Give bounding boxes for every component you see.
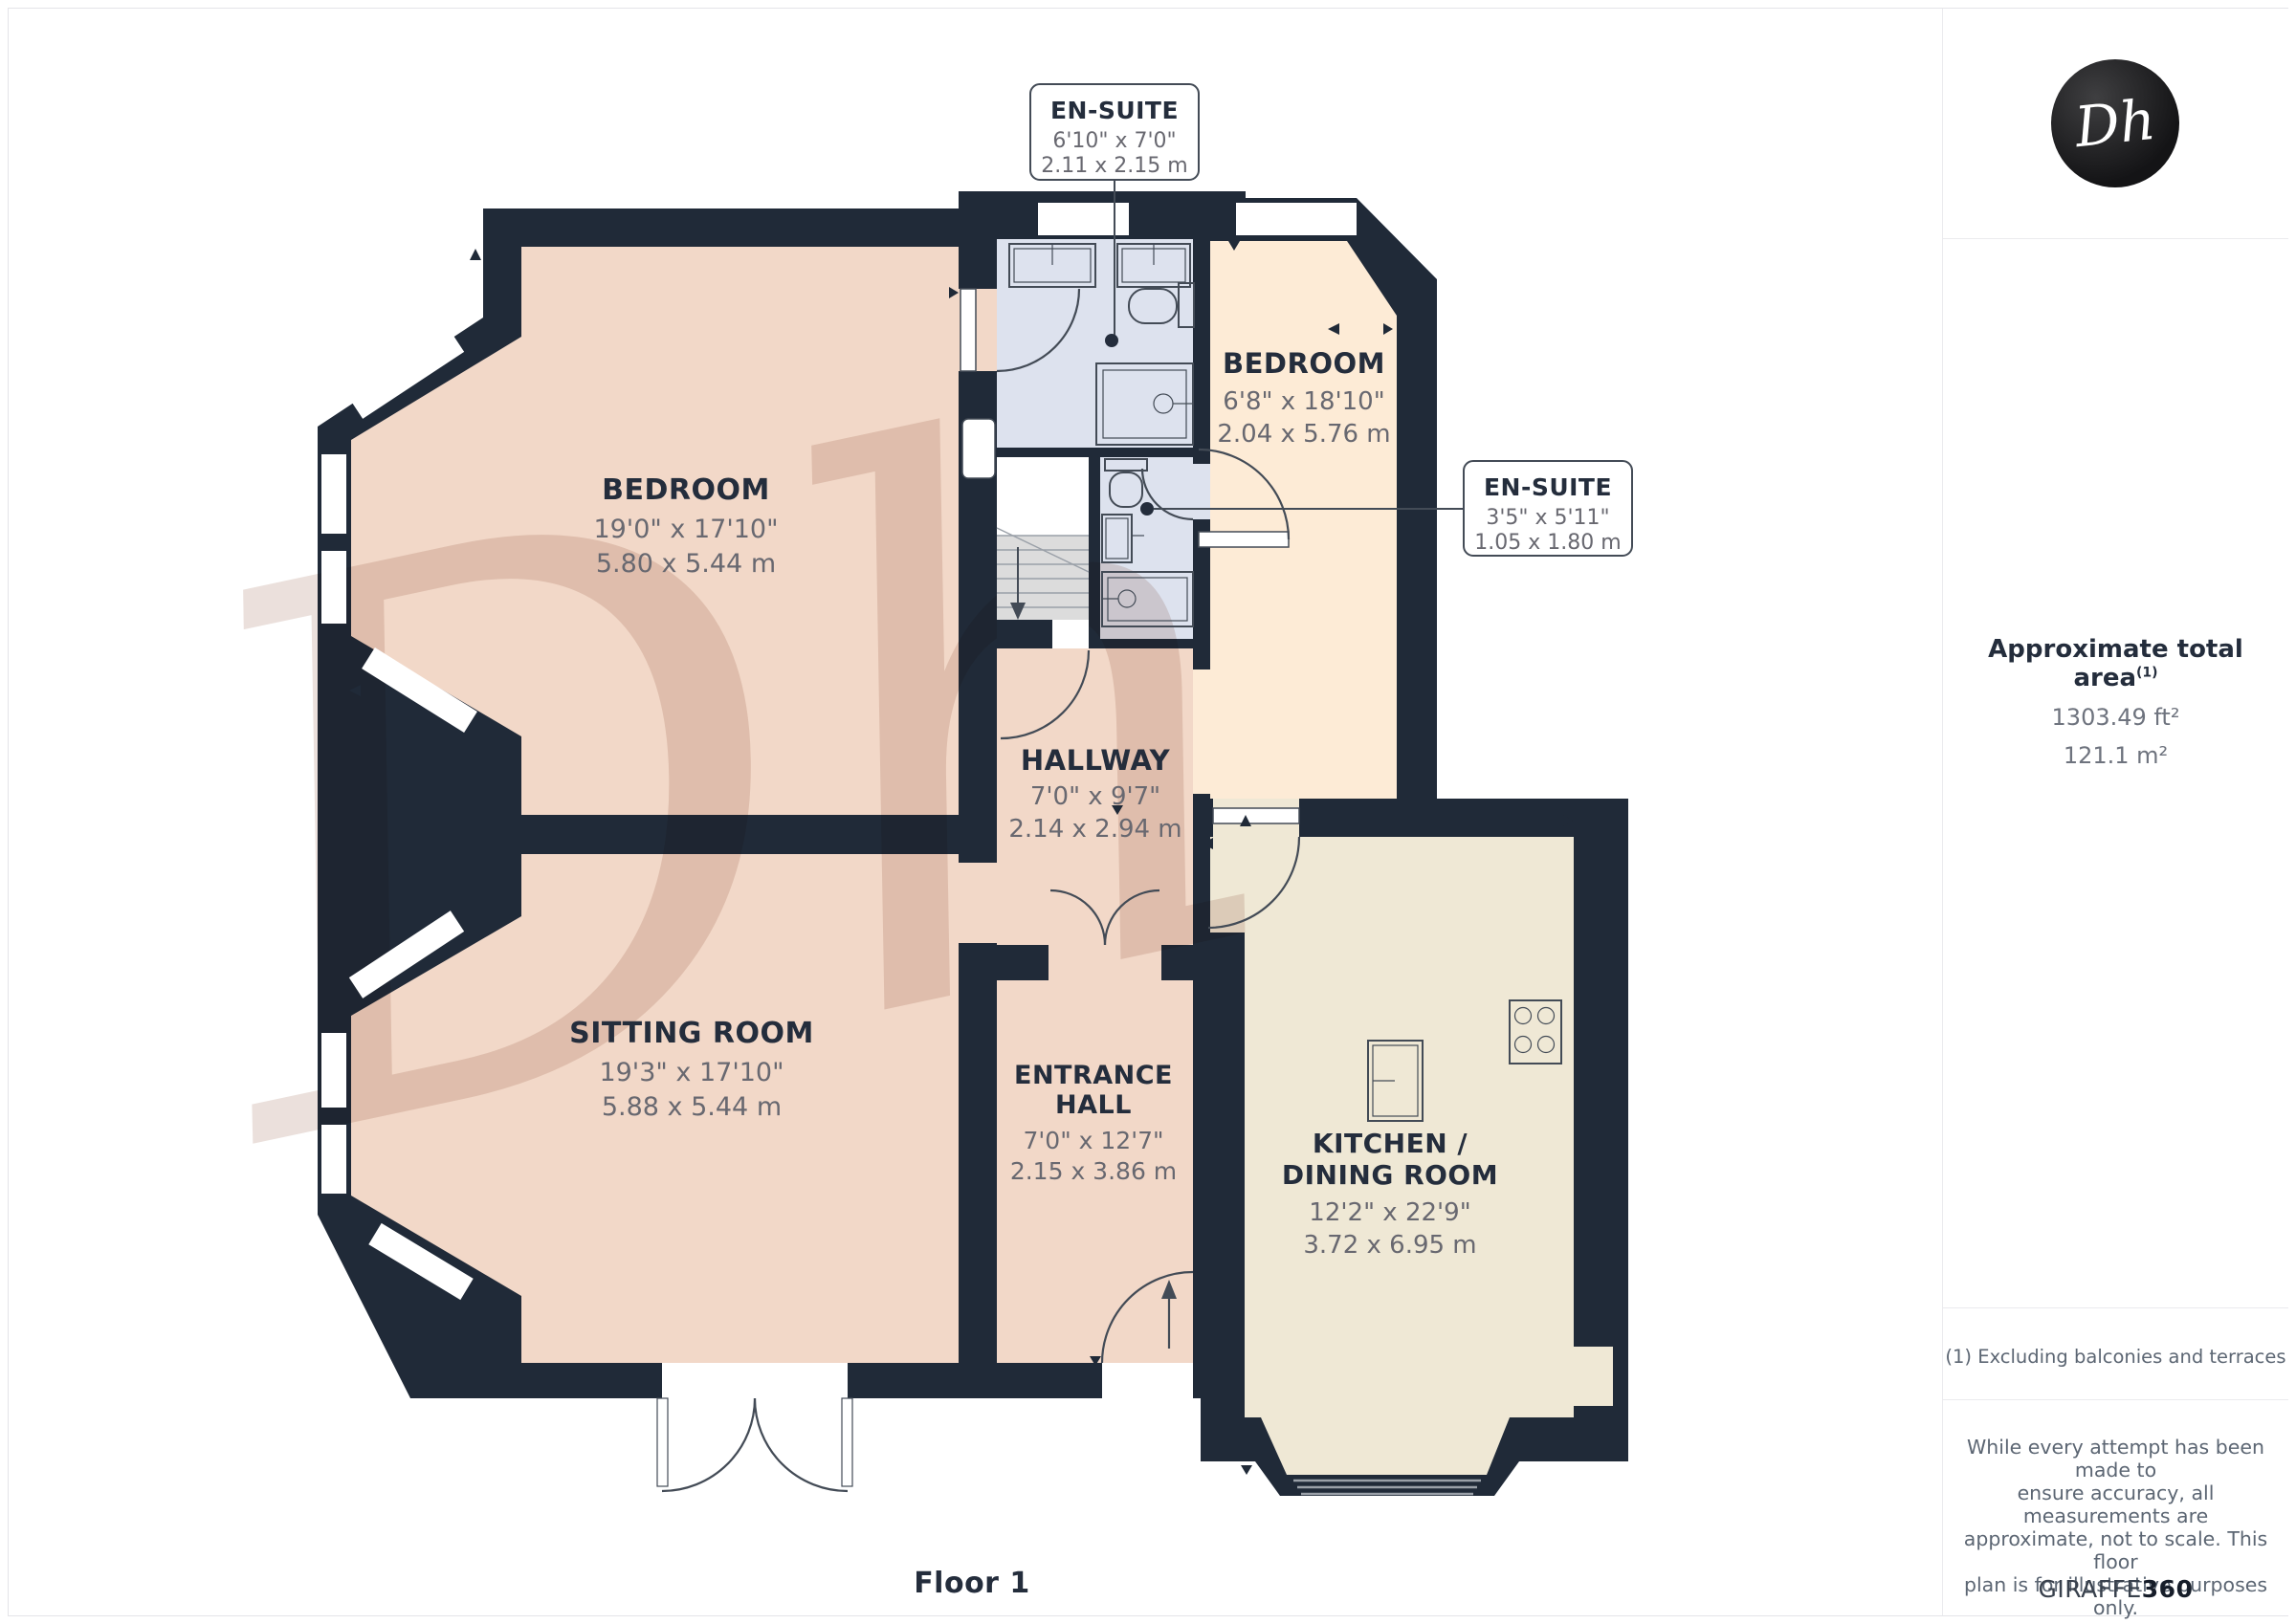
disclaimer-line: ensure accuracy, all measurements are — [1943, 1481, 2288, 1527]
disclaimer-line: approximate, not to scale. This floor — [1943, 1527, 2288, 1573]
brand-prefix: GIRAFFE — [2039, 1575, 2142, 1603]
logo-section: Dh — [1943, 9, 2288, 239]
room-dims-imperial: 19'0" x 17'10" — [593, 515, 778, 544]
room-name: BEDROOM — [1223, 347, 1385, 380]
room-dims-imperial: 3'5" x 5'11" — [1486, 506, 1609, 530]
opening-front-door — [1102, 1363, 1193, 1398]
room-dims-metric: 2.04 x 5.76 m — [1217, 420, 1390, 449]
area-title-text: Approximate total area — [1988, 635, 2243, 692]
brand-suffix: 360 — [2142, 1575, 2194, 1603]
floor-label: Floor 1 — [914, 1567, 1030, 1600]
room-dims-metric: 2.14 x 2.94 m — [1008, 815, 1181, 844]
area-metric: 121.1 m² — [1943, 742, 2288, 769]
door-arc-french-right — [755, 1398, 848, 1491]
room-dims-imperial: 19'3" x 17'10" — [599, 1058, 784, 1087]
room-name: KITCHEN / — [1313, 1128, 1468, 1159]
area-footnote-ref: (1) — [2136, 665, 2158, 680]
door-leaf-ensuite-large — [960, 289, 976, 371]
room-dims-metric: 5.80 x 5.44 m — [596, 549, 776, 579]
info-sidebar: Dh Approximate total area(1) 1303.49 ft²… — [1942, 9, 2288, 1615]
room-name: HALLWAY — [1021, 744, 1171, 777]
giraffe360-brand: GIRAFFE360 — [1943, 1575, 2288, 1603]
divider — [1943, 1399, 2288, 1400]
area-footnote: (1) Excluding balconies and terraces — [1943, 1346, 2288, 1368]
wall-marker — [470, 249, 481, 260]
window-bedroom-right-top — [1236, 203, 1357, 235]
room-dims-imperial: 7'0" x 9'7" — [1030, 782, 1160, 811]
room-dims-metric: 1.05 x 1.80 m — [1474, 531, 1621, 555]
ceiling-light-2 — [1140, 502, 1154, 516]
room-dims-metric: 3.72 x 6.95 m — [1303, 1231, 1476, 1260]
room-dims-imperial: 6'8" x 18'10" — [1223, 387, 1384, 416]
agency-logo-monogram: Dh — [2072, 87, 2159, 160]
disclaimer-line: While every attempt has been made to — [1943, 1436, 2288, 1481]
label-sitting-room: SITTING ROOM 19'3" x 17'10" 5.88 x 5.44 … — [569, 1017, 814, 1122]
wall-marker — [1241, 1465, 1252, 1475]
label-bedroom-left: BEDROOM 19'0" x 17'10" 5.80 x 5.44 m — [593, 473, 778, 579]
french-door-jamb-left — [657, 1398, 668, 1486]
door-leaf-bedroom-right — [1199, 532, 1289, 547]
room-name: EN-SUITE — [1050, 97, 1179, 124]
room-dims-metric: 2.15 x 3.86 m — [1010, 1157, 1177, 1185]
room-name: BEDROOM — [602, 473, 770, 507]
opening-french-doors — [662, 1363, 848, 1398]
room-name: SITTING ROOM — [569, 1017, 814, 1050]
room-name: HALL — [1055, 1090, 1132, 1120]
staircase — [997, 528, 1089, 648]
area-imperial: 1303.49 ft² — [1943, 704, 2288, 731]
french-door-jamb-right — [842, 1398, 852, 1486]
room-dims-metric: 5.88 x 5.44 m — [602, 1092, 782, 1122]
area-section: Approximate total area(1) 1303.49 ft² 12… — [1943, 635, 2288, 769]
label-bedroom-right: BEDROOM 6'8" x 18'10" 2.04 x 5.76 m — [1217, 347, 1390, 449]
room-dims-imperial: 6'10" x 7'0" — [1052, 129, 1176, 153]
room-name: EN-SUITE — [1484, 473, 1612, 501]
divider — [1943, 1307, 2288, 1308]
window-stairwell-niche — [962, 419, 995, 478]
stair-opening — [1052, 620, 1089, 648]
door-arc-french-left — [662, 1398, 755, 1491]
page: Dh — [0, 0, 2296, 1624]
room-name: DINING ROOM — [1282, 1159, 1498, 1191]
area-title: Approximate total area(1) — [1943, 635, 2288, 692]
ceiling-light-1 — [1105, 334, 1118, 347]
room-dims-imperial: 7'0" x 12'7" — [1024, 1127, 1164, 1154]
label-hallway: HALLWAY 7'0" x 9'7" 2.14 x 2.94 m — [1008, 744, 1181, 844]
agency-logo: Dh — [2051, 59, 2179, 187]
room-dims-imperial: 12'2" x 22'9" — [1309, 1198, 1470, 1227]
room-name: ENTRANCE — [1014, 1061, 1173, 1090]
door-leaf-kitchen — [1213, 808, 1299, 823]
floor-plan: Dh — [0, 0, 1942, 1624]
room-dims-metric: 2.11 x 2.15 m — [1041, 154, 1187, 178]
